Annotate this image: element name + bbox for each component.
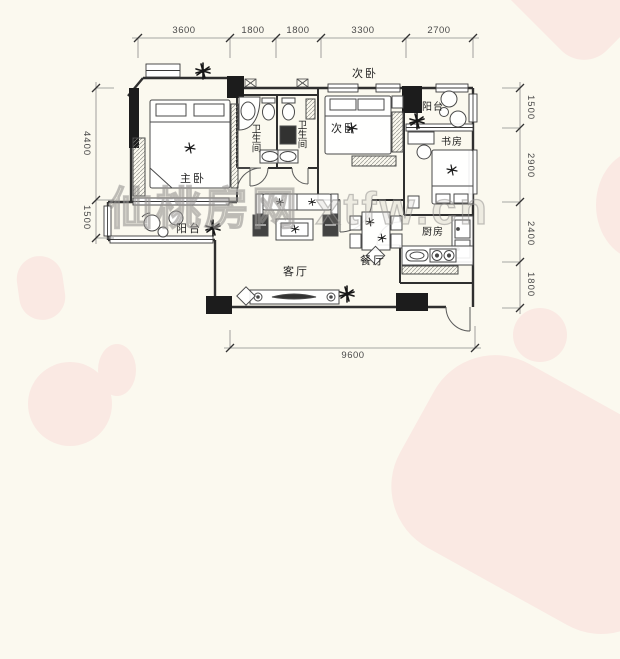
room-label-balcony-top: 阳台 <box>422 98 444 113</box>
dim-top-5: 2700 <box>409 25 469 36</box>
dim-left-1: 4400 <box>80 116 92 172</box>
room-label-bedroom-mid: 次卧 <box>331 120 357 136</box>
room-label-study: 书房 <box>441 133 463 148</box>
dim-right-1: 1500 <box>524 86 536 130</box>
watermark-text: 仙桃房网 xtfw.cn <box>108 172 490 237</box>
shaft-boxes <box>245 79 308 87</box>
dim-top-4: 3300 <box>333 25 393 36</box>
dim-top-1: 3600 <box>154 25 214 36</box>
room-label-dining: 餐厅 <box>360 252 386 268</box>
dim-right-2: 2900 <box>524 138 536 194</box>
dim-left-2: 1500 <box>80 195 92 241</box>
room-label-bathroom-1: 卫生间 <box>250 124 260 153</box>
room-label-bedroom-top: 次卧 <box>352 65 378 81</box>
room-label-bathroom-2: 卫生间 <box>296 120 306 149</box>
floorplan-page: { "watermark": { "text": "仙桃房网 xtfw.cn" … <box>0 0 620 400</box>
dim-top-3: 1800 <box>268 25 328 36</box>
room-label-living: 客厅 <box>283 263 309 279</box>
dim-right-3: 2400 <box>524 206 536 262</box>
dim-bottom-1: 9600 <box>323 350 383 361</box>
dim-right-4: 1800 <box>524 262 536 308</box>
